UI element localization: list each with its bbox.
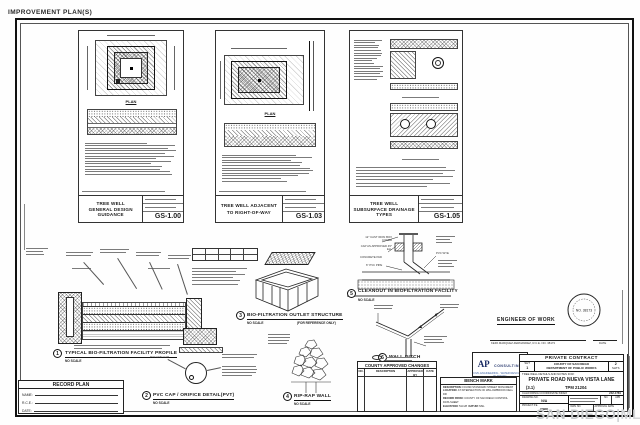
record-date-label: DATE: — [22, 409, 32, 413]
body-col — [424, 377, 436, 411]
text-line — [222, 175, 298, 176]
drainage-type-detail-2 — [390, 103, 458, 155]
elev-label: ELEVATION: — [443, 405, 458, 408]
text-line — [82, 191, 165, 192]
text-line — [354, 47, 378, 48]
text-line — [85, 153, 165, 154]
agency-cell: COUNTY OF SAN DIEGO DEPARTMENT OF PUBLIC… — [535, 362, 607, 371]
text-line — [386, 357, 415, 358]
text-line — [26, 254, 44, 255]
panel-notes-block — [222, 153, 320, 183]
panel-title-block: TREE WELL ADJACENT TO RIGHT-OF-WAY GS-1.… — [216, 195, 324, 222]
text-line — [354, 53, 382, 54]
pvc-end-cap-callout: PVC END CAP — [150, 356, 169, 359]
engineer-signature: KEPA MARQUEZ-FERNANDEZ, R.C.E. NO. 38173 — [491, 342, 555, 345]
text-line — [145, 199, 175, 200]
panel-footnote — [219, 189, 321, 194]
detail-1-number: 1 — [53, 349, 62, 358]
text-line — [354, 58, 377, 59]
revision-row — [143, 204, 183, 212]
profile-callout — [100, 247, 130, 255]
layer-sand — [83, 315, 185, 323]
record-plan-row: DATE: — [19, 405, 123, 413]
profile-outlet-structure — [58, 292, 82, 344]
drain-pipe-symbol — [426, 119, 436, 129]
text-line — [354, 50, 381, 51]
record-plan-row: NAME: — [19, 389, 123, 397]
sht-number: 1 — [520, 366, 534, 371]
seal-number: NO. 38173 — [576, 309, 593, 313]
detail-1-scale: NO SCALE — [65, 359, 81, 363]
detail-3-number: 3 — [236, 311, 245, 320]
detail-5-underbar — [347, 295, 451, 297]
text-line — [356, 183, 450, 184]
text-line — [268, 340, 289, 341]
engineer-of-work-heading: ENGINEER OF WORK — [497, 317, 555, 325]
text-line — [136, 252, 161, 253]
panel-title-line2: TO RIGHT-OF-WAY — [227, 210, 271, 215]
right-of-way-line2 — [313, 41, 314, 111]
text-line — [222, 157, 312, 158]
drawing-no-value: N/A — [522, 399, 566, 403]
text-line — [74, 348, 162, 349]
text-line — [100, 249, 129, 250]
text-line — [222, 366, 256, 367]
section-layer-gravel — [88, 128, 176, 135]
approval-no-cell: NO. — [601, 396, 613, 404]
layer-subgrade — [83, 331, 185, 340]
bench-mark-elevation: ELEVATION: 513.28 DATUM: MSL — [443, 405, 514, 409]
record-name-label: NAME: — [22, 393, 33, 397]
section-layer — [225, 136, 315, 147]
body-col — [365, 377, 407, 411]
text-line — [354, 73, 380, 74]
loc-label: LOCATION: — [443, 389, 457, 392]
drainage-type-detail-1 — [390, 39, 458, 93]
text-line — [222, 160, 291, 161]
plan-view-label: PLAN — [79, 99, 183, 104]
outlet-riser — [66, 297, 74, 337]
approval-note-cell — [569, 396, 600, 404]
plan-sheet-page: IMPROVEMENT PLAN(S) PLAN TREE WELL GENER… — [0, 0, 640, 425]
col-description: DESCRIPTION — [365, 369, 407, 376]
detail-5-number: 5 — [347, 289, 356, 298]
orifice-hole — [189, 375, 194, 380]
agency-row: SHT 1 COUNTY OF SAN DIEGO DEPARTMENT OF … — [520, 362, 623, 372]
table-cell — [231, 255, 244, 261]
detail-4-number: 4 — [283, 392, 292, 401]
text-line — [285, 199, 317, 200]
drain-pipe-inner — [435, 60, 441, 66]
tree-center-symbol — [258, 79, 261, 82]
approval-stamp-oval — [372, 355, 382, 360]
panel-title-block: TREE WELL GENERAL DESIGN GUIDANCE GS-1.0… — [79, 195, 183, 222]
text-line — [85, 169, 160, 170]
text-line — [85, 163, 151, 164]
drain-pipe-symbol — [400, 119, 410, 129]
panel-revision-table: GS-1.00 — [143, 196, 183, 222]
riser-stack — [183, 328, 217, 345]
plan-view-label: PLAN — [216, 111, 324, 116]
detail-hatch-band — [390, 39, 458, 49]
panel-revision-table: GS-1.05 — [419, 196, 462, 222]
revision-row — [143, 196, 183, 204]
text-line — [26, 248, 48, 249]
tree-well-section — [87, 109, 177, 135]
table-cell — [219, 255, 232, 261]
text-line — [222, 375, 252, 376]
text-line — [354, 63, 374, 64]
record-plan-box: RECORD PLAN NAME: R.C.E.: DATE: — [18, 380, 124, 414]
plan-corner-drain — [116, 79, 120, 83]
text-line — [85, 158, 156, 159]
text-line — [26, 251, 43, 252]
dimension-line — [174, 46, 175, 90]
sheet-cell: SHT 1 — [520, 362, 535, 371]
record-plan-row: R.C.E.: — [19, 397, 123, 405]
left-margin-note-line — [24, 204, 25, 250]
detail-2-scale: NO SCALE — [153, 401, 169, 405]
riser-base-band — [179, 347, 223, 353]
col-no: NO. — [358, 369, 365, 376]
text-line — [354, 42, 375, 43]
tree-center-symbol — [130, 67, 133, 70]
pvc-cap-callouts — [222, 364, 260, 378]
improvement-plans-label: IMPROVEMENT PLAN(S) — [8, 9, 92, 16]
bench-mark-rows: DESCRIPTION: FOUND STANDARD STREET MONUM… — [441, 385, 516, 410]
dimension-line — [87, 46, 88, 90]
text-line — [421, 207, 454, 208]
detail-2-number: 2 — [142, 391, 151, 400]
text-line — [100, 252, 126, 253]
elev-value: 513.28 — [459, 405, 467, 408]
panel-sheet-number: GS-1.03 — [283, 212, 324, 222]
rec-label: RECORD FROM: — [443, 397, 463, 400]
text-line — [222, 354, 257, 355]
text-line — [354, 71, 383, 72]
text-line — [354, 68, 380, 69]
text-line — [570, 401, 595, 402]
margin-strip-line — [627, 354, 628, 412]
text-line — [219, 191, 306, 192]
text-line — [222, 372, 256, 373]
table-cell — [193, 255, 206, 261]
watermark-mls: MLS — [621, 407, 640, 422]
col-date: DATE — [424, 369, 436, 376]
margin-vertical-text-line — [622, 290, 623, 344]
panel-title-line1: TREE WELL ADJACENT — [221, 203, 277, 208]
text-line — [222, 181, 287, 182]
text-line — [570, 398, 597, 399]
text-line — [222, 178, 281, 179]
text-line — [85, 161, 171, 162]
right-of-way-line — [309, 41, 310, 111]
record-rce-line — [35, 403, 118, 404]
text-line — [192, 284, 238, 285]
text-line — [192, 277, 233, 278]
text-line — [66, 255, 91, 256]
revision-row — [419, 196, 462, 204]
text-line — [356, 173, 443, 174]
watermark: SAN DIEGO|MLS — [536, 407, 640, 422]
text-line — [354, 40, 382, 41]
text-line — [168, 255, 191, 256]
dimension-line — [220, 61, 221, 99]
detail-gravel-band — [390, 83, 458, 90]
text-line — [222, 155, 296, 156]
panel-title-cell: TREE WELL GENERAL DESIGN GUIDANCE — [79, 196, 143, 222]
panel-title-line1: TREE WELL — [97, 201, 125, 206]
watermark-san-diego: SAN DIEGO — [536, 407, 616, 422]
body-col — [358, 377, 365, 411]
engineer-date-label: DATE — [599, 342, 606, 345]
table-cell — [206, 255, 219, 261]
dimension-line — [107, 35, 155, 36]
detail-3-label: BIO-FILTRATION OUTLET STRUCTURE — [247, 313, 343, 320]
private-contract-title-block: PRIVATE CONTRACT SHT 1 COUNTY OF SAN DIE… — [519, 354, 624, 412]
drain-pipe-symbol — [432, 57, 444, 69]
detail-hatch-block — [390, 51, 416, 79]
detail-3-reference-note: (FOR REFERENCE ONLY) — [297, 321, 336, 325]
engineer-seal: NO. 38173 — [566, 292, 602, 328]
county-changes-body — [358, 377, 436, 411]
section-layer-soil — [88, 110, 176, 117]
agency-line2: DEPARTMENT OF PUBLIC WORKS — [535, 366, 607, 371]
text-line — [268, 337, 290, 338]
panel-title-line2: SUBSURFACE DRAINAGE TYPES — [351, 207, 417, 218]
text-line — [66, 252, 93, 253]
text-line — [354, 79, 377, 80]
profile-callout — [168, 253, 192, 261]
bench-mark-record: RECORD FROM: COUNTY OF SAN DIEGO CONTROL… — [443, 397, 514, 405]
text-line — [85, 171, 170, 172]
text-line — [222, 162, 302, 163]
panel-tree-well-row: PLAN TREE WELL ADJACENT TO RIGHT-OF-WAY … — [215, 30, 325, 223]
cleanout-section-drawing — [352, 230, 464, 290]
text-line — [168, 258, 189, 259]
riprap-callouts — [268, 332, 292, 346]
text-line — [354, 66, 383, 67]
approval-apr-cell: APR — [612, 396, 623, 404]
detail-caption-line — [402, 95, 446, 100]
profile-layer-band — [82, 302, 186, 340]
panel-notes-block — [85, 141, 179, 176]
text-line — [356, 179, 433, 180]
text-line — [354, 76, 383, 77]
text-line — [222, 173, 309, 174]
profile-left-callouts — [26, 246, 54, 257]
text-line — [268, 343, 287, 344]
profile-callout — [66, 250, 94, 258]
shts-label: SHTS — [609, 367, 623, 371]
revision-row — [419, 204, 462, 212]
text-line — [356, 167, 446, 168]
text-line — [356, 186, 427, 187]
panel-subsurface-drainage: TREE WELL SUBSURFACE DRAINAGE TYPES GS-1… — [349, 30, 463, 223]
panel-sheet-number: GS-1.05 — [419, 212, 462, 222]
text-line — [85, 156, 174, 157]
text-line — [192, 268, 247, 269]
text-line — [85, 150, 176, 151]
record-plan-title: RECORD PLAN — [19, 381, 123, 389]
text-line — [356, 170, 455, 171]
text-line — [268, 334, 290, 335]
text-line — [192, 280, 240, 281]
body-col — [407, 377, 424, 411]
text-line — [222, 369, 257, 370]
outlet-sizing-table — [192, 248, 258, 261]
pvc-cap-callouts — [222, 352, 258, 360]
county-approved-changes-table: COUNTY APPROVED CHANGES NO. DESCRIPTION … — [357, 361, 437, 412]
panel-notes-column — [354, 38, 384, 81]
ap-logo-initials: AP — [478, 359, 490, 369]
outlet-structure-notes — [192, 266, 250, 287]
detail-hatch-band — [390, 103, 458, 111]
text-line — [222, 170, 313, 171]
outlet-structure-isometric — [252, 266, 322, 312]
panel-title-cell: TREE WELL SUBSURFACE DRAINAGE TYPES — [350, 196, 419, 222]
wall-ditch-section — [370, 302, 462, 360]
text-line — [145, 207, 175, 208]
text-line — [356, 176, 453, 177]
text-line — [421, 199, 454, 200]
record-name-line — [35, 395, 118, 396]
revision-row — [283, 196, 324, 204]
record-rce-label: R.C.E.: — [22, 401, 33, 405]
detail-3-scale: NO SCALE — [247, 321, 263, 325]
text-line — [74, 345, 170, 346]
detail-5-label: CLEANOUT IN BIOFILTRATION FACILITY — [358, 289, 458, 295]
datum-label: DATUM: — [468, 405, 478, 408]
detail-4-scale: NO SCALE — [294, 402, 310, 406]
text-line — [222, 357, 254, 358]
margin-vertical-text-line — [629, 356, 630, 408]
text-line — [85, 145, 175, 146]
bench-mark-location: LOCATION: AT INTERSECTION OF WILLOWBROOK… — [443, 389, 514, 397]
coordinate-value: 242-1781 — [609, 391, 621, 395]
text-line — [354, 60, 372, 61]
profile-callout — [136, 250, 162, 258]
text-line — [354, 55, 381, 56]
panel-title-cell: TREE WELL ADJACENT TO RIGHT-OF-WAY — [216, 196, 283, 222]
bench-mark-box: BENCH MARK DESCRIPTION: FOUND STANDARD S… — [440, 377, 517, 412]
panel-sheet-number: GS-1.00 — [143, 212, 183, 222]
text-line — [402, 159, 439, 160]
text-line — [222, 165, 300, 166]
layer-soil-media — [83, 307, 185, 315]
panel-tree-well-general: PLAN TREE WELL GENERAL DESIGN GUIDANCE G… — [78, 30, 184, 223]
panel-title-line1: TREE WELL — [370, 201, 398, 206]
text-line — [192, 274, 245, 275]
detail-caption-line — [402, 157, 446, 162]
detail-hatch-band — [390, 141, 458, 149]
sheets-cell: 2 SHTS — [608, 362, 623, 371]
panel-title-block: TREE WELL SUBSURFACE DRAINAGE TYPES GS-1… — [350, 195, 462, 222]
layer-gravel — [83, 323, 185, 331]
panel-footnote — [82, 189, 180, 194]
panel-revision-table: GS-1.03 — [283, 196, 324, 222]
text-line — [285, 207, 317, 208]
datum-value: MSL — [479, 405, 484, 408]
text-line — [136, 255, 159, 256]
detail-4-label: RIP-RAP WALL — [294, 394, 331, 401]
revision-row — [283, 204, 324, 212]
text-line — [85, 143, 147, 144]
text-line — [192, 271, 236, 272]
col-approved-by: APPROVED BY — [407, 369, 424, 376]
drawing-no-label: DRAWING NO. — [522, 396, 538, 399]
detail-2-label: PVC CAP / ORIFICE DETAIL(PVT) — [153, 393, 234, 400]
county-changes-title: COUNTY APPROVED CHANGES — [358, 362, 436, 369]
coordinate-label: CALIFORNIA COORDINATE INDEX — [522, 391, 567, 395]
riprap-rock-pile — [291, 338, 333, 394]
dimension-line — [231, 48, 287, 49]
table-cell — [244, 255, 257, 261]
text-line — [354, 45, 379, 46]
private-contract-header: PRIVATE CONTRACT — [520, 355, 623, 362]
drawing-no-cell: DRAWING NO. N/A — [520, 396, 568, 404]
text-line — [402, 97, 439, 98]
text-line — [222, 168, 310, 169]
panel-notes-block — [356, 165, 458, 189]
pvc-cap-face — [185, 362, 207, 384]
panel-title-line2: GENERAL DESIGN GUIDANCE — [80, 207, 141, 218]
text-line — [85, 148, 168, 149]
text-line — [85, 174, 172, 175]
text-line — [85, 166, 162, 167]
project-road-name: PRIVATE ROAD NUEVA VISTA LANE — [520, 377, 623, 385]
section-view — [224, 123, 316, 147]
record-date-line — [34, 411, 118, 412]
approval-cells-top: NO. APR — [569, 396, 623, 405]
county-changes-header-row: NO. DESCRIPTION APPROVED BY DATE — [358, 369, 436, 377]
outlet-grate — [264, 252, 316, 265]
